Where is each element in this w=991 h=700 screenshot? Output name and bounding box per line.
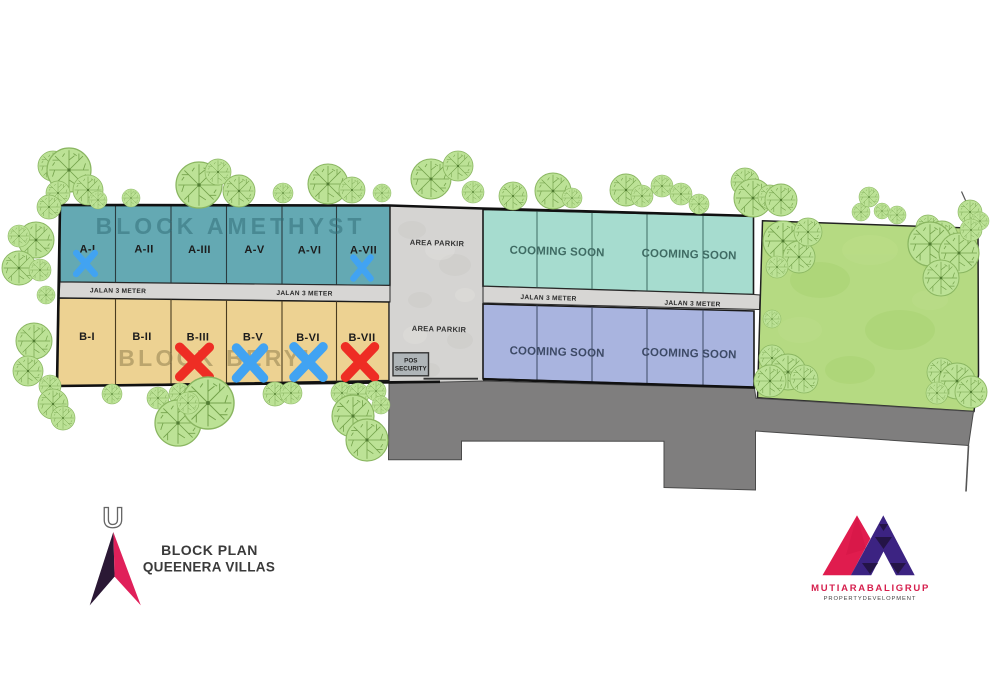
svg-text:AREA PARKIR: AREA PARKIR <box>410 238 465 248</box>
svg-text:MUTIARABALIGRUP: MUTIARABALIGRUP <box>811 583 930 594</box>
svg-text:U: U <box>103 503 124 535</box>
svg-text:SECURITY: SECURITY <box>395 365 428 372</box>
svg-text:JALAN 3 METER: JALAN 3 METER <box>276 290 332 298</box>
svg-text:B-III: B-III <box>187 331 210 343</box>
svg-text:B-V: B-V <box>243 332 263 344</box>
svg-text:POS: POS <box>404 357 417 364</box>
svg-text:BLOCK AMETHYST: BLOCK AMETHYST <box>96 213 366 239</box>
svg-text:JALAN 3 METER: JALAN 3 METER <box>90 287 146 295</box>
svg-text:A-III: A-III <box>188 244 211 256</box>
svg-text:B-VI: B-VI <box>296 332 320 344</box>
svg-text:A-II: A-II <box>134 244 153 256</box>
svg-text:A-VI: A-VI <box>298 244 322 256</box>
svg-text:BLOCK BERYL: BLOCK BERYL <box>118 345 320 371</box>
svg-text:B-VII: B-VII <box>348 332 375 344</box>
svg-text:PROPERTYDEVELOPMENT: PROPERTYDEVELOPMENT <box>824 596 917 602</box>
svg-text:BLOCK PLAN: BLOCK PLAN <box>161 542 258 558</box>
svg-text:AREA PARKIR: AREA PARKIR <box>412 324 467 334</box>
svg-text:A-V: A-V <box>244 244 264 256</box>
svg-text:B-II: B-II <box>132 331 151 343</box>
svg-text:B-I: B-I <box>79 331 95 343</box>
svg-text:QUEENERA VILLAS: QUEENERA VILLAS <box>143 560 275 575</box>
